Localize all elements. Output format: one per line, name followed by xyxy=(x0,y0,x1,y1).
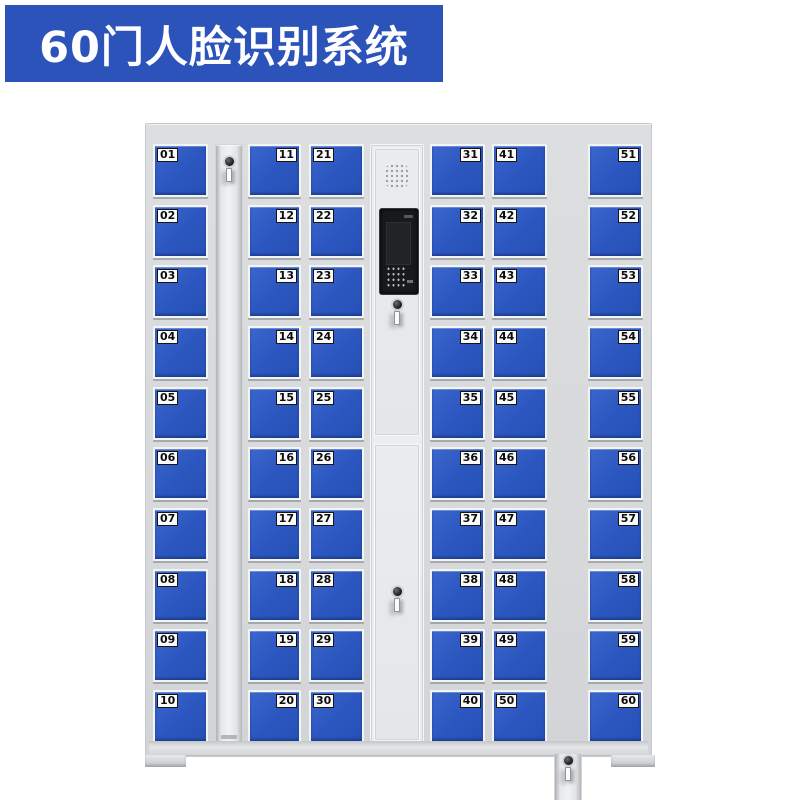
door-number-plate: 14 xyxy=(276,330,297,344)
locker-door-36[interactable]: 36 xyxy=(430,447,485,500)
locker-door-12[interactable]: 12 xyxy=(248,205,301,258)
door-number-plate: 12 xyxy=(276,209,297,223)
locker-door-05[interactable]: 05 xyxy=(153,387,208,440)
door-number-plate: 54 xyxy=(618,330,639,344)
locker-door-18[interactable]: 18 xyxy=(248,569,301,622)
door-number-plate: 17 xyxy=(276,512,297,526)
door-number-plate: 40 xyxy=(460,694,481,708)
door-number-plate: 55 xyxy=(618,391,639,405)
locker-door-37[interactable]: 37 xyxy=(430,508,485,561)
locker-door-10[interactable]: 10 xyxy=(153,690,208,743)
locker-door-54[interactable]: 54 xyxy=(588,326,643,379)
door-number-plate: 39 xyxy=(460,633,481,647)
locker-door-31[interactable]: 31 xyxy=(430,144,485,197)
locker-door-22[interactable]: 22 xyxy=(309,205,364,258)
locker-door-49[interactable]: 49 xyxy=(492,629,547,682)
locker-door-13[interactable]: 13 xyxy=(248,265,301,318)
locker-door-46[interactable]: 46 xyxy=(492,447,547,500)
locker-door-25[interactable]: 25 xyxy=(309,387,364,440)
screen-display xyxy=(386,222,411,265)
door-number-plate: 51 xyxy=(618,148,639,162)
door-number-plate: 26 xyxy=(313,451,334,465)
door-number-plate: 45 xyxy=(496,391,517,405)
key-lock[interactable] xyxy=(390,300,404,325)
door-number-plate: 56 xyxy=(618,451,639,465)
locker-door-53[interactable]: 53 xyxy=(588,265,643,318)
face-recognition-screen[interactable] xyxy=(379,208,419,295)
locker-door-38[interactable]: 38 xyxy=(430,569,485,622)
locker-door-19[interactable]: 19 xyxy=(248,629,301,682)
side-button[interactable] xyxy=(407,280,413,283)
locker-door-59[interactable]: 59 xyxy=(588,629,643,682)
locker-door-20[interactable]: 20 xyxy=(248,690,301,743)
door-number-plate: 30 xyxy=(313,694,334,708)
key-lock[interactable] xyxy=(222,157,236,182)
locker-door-column: 01020304050607080910 xyxy=(153,144,208,743)
locker-door-26[interactable]: 26 xyxy=(309,447,364,500)
camera-slot xyxy=(404,215,413,218)
door-number-plate: 03 xyxy=(157,269,178,283)
door-number-plate: 58 xyxy=(618,573,639,587)
door-number-plate: 27 xyxy=(313,512,334,526)
key-lock[interactable] xyxy=(390,587,404,612)
door-number-plate: 49 xyxy=(496,633,517,647)
locker-door-11[interactable]: 11 xyxy=(248,144,301,197)
locker-door-47[interactable]: 47 xyxy=(492,508,547,561)
door-number-plate: 19 xyxy=(276,633,297,647)
door-number-plate: 47 xyxy=(496,512,517,526)
side-lock-panel xyxy=(215,144,243,743)
door-number-plate: 01 xyxy=(157,148,178,162)
door-number-plate: 37 xyxy=(460,512,481,526)
lock-cylinder[interactable] xyxy=(225,157,234,166)
door-number-plate: 52 xyxy=(618,209,639,223)
locker-door-41[interactable]: 41 xyxy=(492,144,547,197)
hanging-key xyxy=(226,168,232,182)
locker-door-column: 41424344454647484950 xyxy=(492,144,547,743)
hanging-key xyxy=(394,311,400,325)
door-number-plate: 57 xyxy=(618,512,639,526)
product-title-banner: 60门人脸识别系统 xyxy=(5,5,443,82)
locker-door-58[interactable]: 58 xyxy=(588,569,643,622)
door-number-plate: 22 xyxy=(313,209,334,223)
door-number-plate: 36 xyxy=(460,451,481,465)
door-number-plate: 32 xyxy=(460,209,481,223)
door-number-plate: 53 xyxy=(618,269,639,283)
locker-door-56[interactable]: 56 xyxy=(588,447,643,500)
locker-door-55[interactable]: 55 xyxy=(588,387,643,440)
door-number-plate: 07 xyxy=(157,512,178,526)
hanging-key xyxy=(565,767,571,781)
door-number-plate: 38 xyxy=(460,573,481,587)
locker-door-09[interactable]: 09 xyxy=(153,629,208,682)
locker-door-45[interactable]: 45 xyxy=(492,387,547,440)
locker-door-60[interactable]: 60 xyxy=(588,690,643,743)
door-number-plate: 16 xyxy=(276,451,297,465)
keypad[interactable] xyxy=(386,266,405,287)
locker-door-28[interactable]: 28 xyxy=(309,569,364,622)
door-number-plate: 43 xyxy=(496,269,517,283)
lock-cylinder[interactable] xyxy=(564,756,573,765)
locker-door-17[interactable]: 17 xyxy=(248,508,301,561)
locker-door-52[interactable]: 52 xyxy=(588,205,643,258)
door-number-plate: 21 xyxy=(313,148,334,162)
locker-door-04[interactable]: 04 xyxy=(153,326,208,379)
locker-door-02[interactable]: 02 xyxy=(153,205,208,258)
locker-door-43[interactable]: 43 xyxy=(492,265,547,318)
door-number-plate: 25 xyxy=(313,391,334,405)
locker-door-48[interactable]: 48 xyxy=(492,569,547,622)
locker-door-44[interactable]: 44 xyxy=(492,326,547,379)
locker-door-23[interactable]: 23 xyxy=(309,265,364,318)
door-number-plate: 33 xyxy=(460,269,481,283)
hanging-key xyxy=(394,598,400,612)
locker-door-35[interactable]: 35 xyxy=(430,387,485,440)
locker-door-51[interactable]: 51 xyxy=(588,144,643,197)
door-number-plate: 04 xyxy=(157,330,178,344)
locker-door-57[interactable]: 57 xyxy=(588,508,643,561)
locker-door-column: 31323334353637383940 xyxy=(430,144,485,743)
locker-door-32[interactable]: 32 xyxy=(430,205,485,258)
door-number-plate: 05 xyxy=(157,391,178,405)
locker-door-33[interactable]: 33 xyxy=(430,265,485,318)
door-number-plate: 44 xyxy=(496,330,517,344)
door-number-plate: 18 xyxy=(276,573,297,587)
door-number-plate: 46 xyxy=(496,451,517,465)
door-number-plate: 06 xyxy=(157,451,178,465)
lock-cylinder[interactable] xyxy=(393,587,402,596)
door-number-plate: 34 xyxy=(460,330,481,344)
locker-door-08[interactable]: 08 xyxy=(153,569,208,622)
door-number-plate: 02 xyxy=(157,209,178,223)
cabinet-foot-left xyxy=(145,755,186,767)
door-number-plate: 35 xyxy=(460,391,481,405)
product-title: 60门人脸识别系统 xyxy=(39,13,409,75)
locker-door-16[interactable]: 16 xyxy=(248,447,301,500)
door-number-plate: 20 xyxy=(276,694,297,708)
locker-door-column: 21222324252627282930 xyxy=(309,144,364,743)
locker-door-14[interactable]: 14 xyxy=(248,326,301,379)
control-panel xyxy=(370,144,424,743)
locker-cabinet: 0102030405060708091011121314151617181920… xyxy=(145,123,652,757)
locker-door-50[interactable]: 50 xyxy=(492,690,547,743)
door-number-plate: 29 xyxy=(313,633,334,647)
locker-door-21[interactable]: 21 xyxy=(309,144,364,197)
locker-door-29[interactable]: 29 xyxy=(309,629,364,682)
locker-door-40[interactable]: 40 xyxy=(430,690,485,743)
door-number-plate: 08 xyxy=(157,573,178,587)
cabinet-base xyxy=(149,741,648,754)
door-number-plate: 31 xyxy=(460,148,481,162)
locker-door-07[interactable]: 07 xyxy=(153,508,208,561)
product-image: 60门人脸识别系统 010203040506070809101112131415… xyxy=(0,0,800,800)
lock-cylinder[interactable] xyxy=(393,300,402,309)
door-number-plate: 23 xyxy=(313,269,334,283)
control-panel-lower-door[interactable] xyxy=(374,444,420,741)
locker-door-27[interactable]: 27 xyxy=(309,508,364,561)
door-number-plate: 10 xyxy=(157,694,178,708)
locker-door-03[interactable]: 03 xyxy=(153,265,208,318)
door-number-plate: 48 xyxy=(496,573,517,587)
door-number-plate: 15 xyxy=(276,391,297,405)
locker-door-42[interactable]: 42 xyxy=(492,205,547,258)
key-lock[interactable] xyxy=(561,756,575,781)
locker-door-column: 11121314151617181920 xyxy=(248,144,301,743)
door-number-plate: 11 xyxy=(276,148,297,162)
locker-door-30[interactable]: 30 xyxy=(309,690,364,743)
door-number-plate: 50 xyxy=(496,694,517,708)
door-number-plate: 42 xyxy=(496,209,517,223)
door-number-plate: 60 xyxy=(618,694,639,708)
control-panel-upper-door[interactable] xyxy=(374,148,420,436)
locker-door-06[interactable]: 06 xyxy=(153,447,208,500)
door-number-plate: 13 xyxy=(276,269,297,283)
locker-door-24[interactable]: 24 xyxy=(309,326,364,379)
door-number-plate: 41 xyxy=(496,148,517,162)
locker-door-34[interactable]: 34 xyxy=(430,326,485,379)
door-number-plate: 24 xyxy=(313,330,334,344)
locker-door-column: 51525354555657585960 xyxy=(588,144,643,743)
locker-door-39[interactable]: 39 xyxy=(430,629,485,682)
locker-door-01[interactable]: 01 xyxy=(153,144,208,197)
door-number-plate: 09 xyxy=(157,633,178,647)
cabinet-foot-right xyxy=(611,755,655,767)
door-number-plate: 28 xyxy=(313,573,334,587)
speaker-grille xyxy=(383,162,411,190)
locker-door-15[interactable]: 15 xyxy=(248,387,301,440)
door-number-plate: 59 xyxy=(618,633,639,647)
